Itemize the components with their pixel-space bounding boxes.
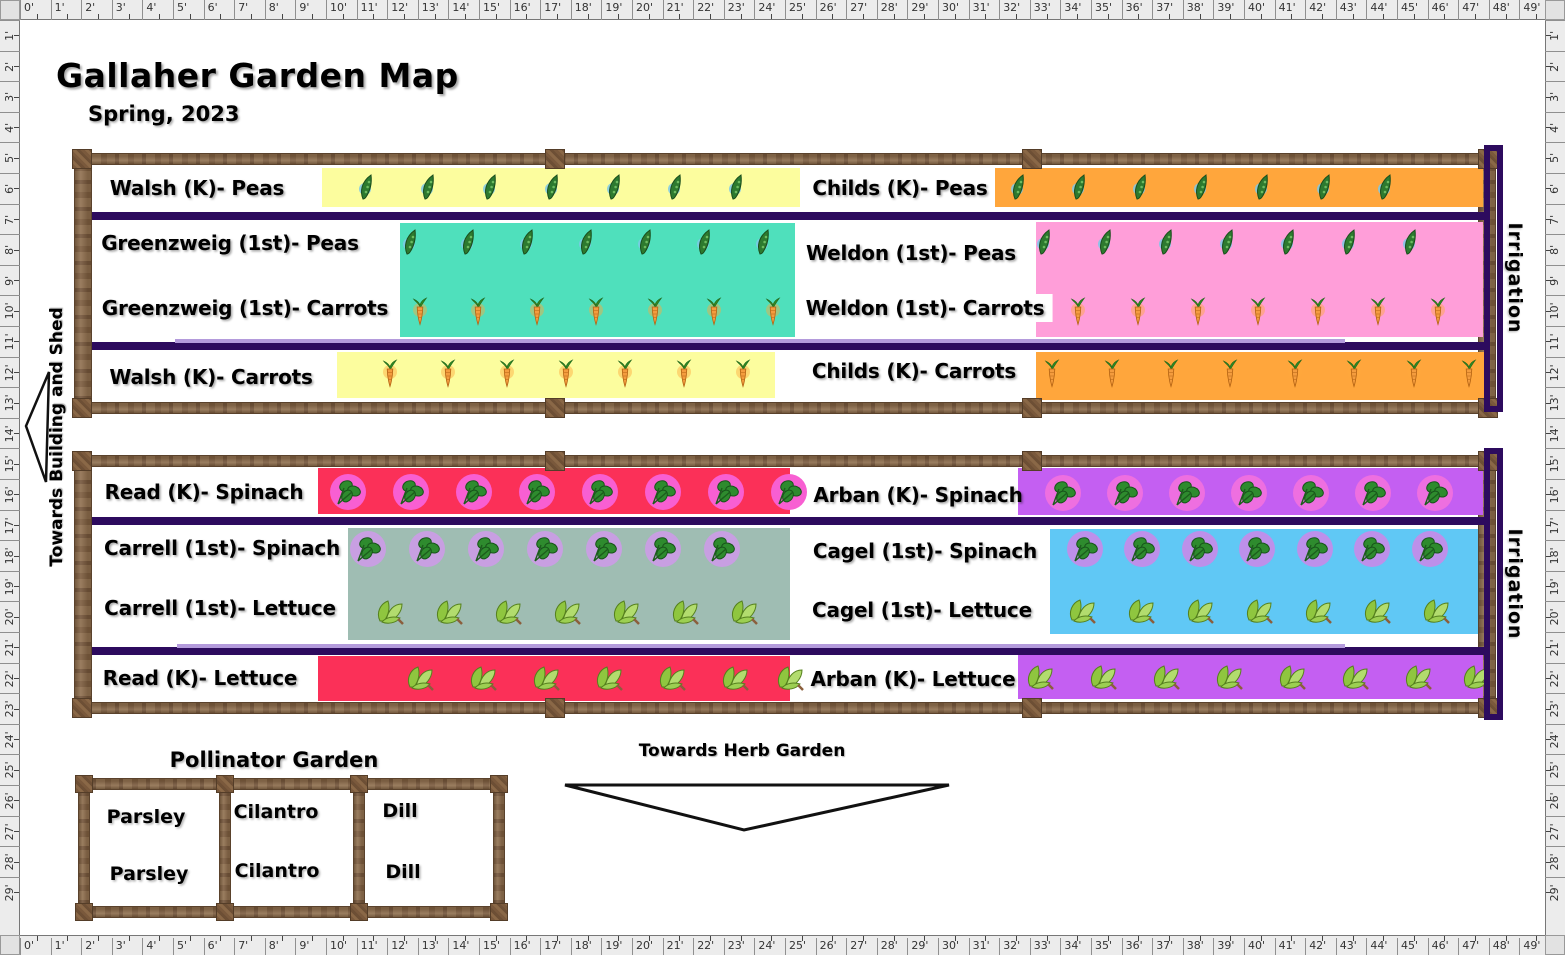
lettuce-icon <box>1339 664 1371 690</box>
herb-label: Dill <box>382 800 417 822</box>
ruler-tick <box>832 936 833 941</box>
spinach-icon <box>1048 478 1078 508</box>
ruler-tick <box>894 936 895 941</box>
ruler-label: 13' <box>418 0 449 20</box>
ruler-label: 18' <box>571 938 602 955</box>
lettuce-icon <box>1213 664 1245 690</box>
irrigation-line-light <box>177 644 1345 648</box>
pollinator-divider-rail <box>353 778 365 918</box>
ruler-tick <box>741 936 742 941</box>
ruler-tick <box>1546 647 1551 648</box>
ruler-label: 44' <box>1366 938 1397 955</box>
ruler-tick <box>741 14 742 19</box>
ruler-label: 3' <box>112 0 143 20</box>
ruler-label: 11' <box>357 0 388 20</box>
ruler-tick <box>924 936 925 941</box>
spinach-icon <box>1110 478 1140 508</box>
pea-icon <box>728 173 748 201</box>
bed-2-bottom-rail <box>74 702 1496 714</box>
ruler-tick <box>557 14 558 19</box>
irrigation-main-line <box>1484 448 1503 720</box>
pea-icon <box>482 173 502 201</box>
ruler-label: 19' <box>601 938 632 955</box>
ruler-tick <box>1291 14 1292 19</box>
spinach-icon <box>522 477 552 507</box>
spinach-icon <box>333 477 363 507</box>
bed-2-top-rail <box>74 455 1496 467</box>
ruler-tick <box>14 678 19 679</box>
carrot-icon <box>1044 359 1060 389</box>
spinach-icon <box>774 477 804 507</box>
lettuce-icon <box>1302 598 1334 624</box>
ruler-tick <box>220 14 221 19</box>
ruler-tick <box>465 14 466 19</box>
ruler-tick <box>14 250 19 251</box>
pollinator-left-rail <box>78 778 90 918</box>
carrot-icon <box>1287 359 1303 389</box>
spinach-icon <box>1127 534 1157 564</box>
ruler-tick <box>1016 14 1017 19</box>
ruler-tick <box>955 936 956 941</box>
ruler-tick <box>67 936 68 941</box>
planting-label: Read (K)- Lettuce <box>103 666 297 690</box>
lettuce-icon <box>551 599 583 625</box>
ruler-tick <box>1546 739 1551 740</box>
ruler-tick <box>1200 14 1201 19</box>
ruler-label: 37' <box>1152 0 1183 20</box>
irrigation-line-light <box>175 339 1345 343</box>
ruler-tick <box>1546 862 1551 863</box>
ruler-label: 7' <box>234 0 265 20</box>
lettuce-icon <box>1420 598 1452 624</box>
ruler-tick <box>1546 250 1551 251</box>
ruler-tick <box>985 14 986 19</box>
ruler-tick <box>588 936 589 941</box>
pea-icon <box>1071 173 1091 201</box>
ruler-label: 25' <box>785 938 816 955</box>
herb-label: Dill <box>385 861 420 883</box>
ruler-tick <box>1444 14 1445 19</box>
carrot-icon <box>1370 297 1386 327</box>
wood-post <box>216 903 234 921</box>
ruler-tick <box>14 525 19 526</box>
ruler-tick <box>710 14 711 19</box>
ruler-tick <box>1169 14 1170 19</box>
herb-label: Parsley <box>107 806 186 828</box>
pea-icon <box>358 173 378 201</box>
ruler-tick <box>771 14 772 19</box>
ruler-tick <box>14 66 19 67</box>
ruler-label: 15' <box>479 0 510 20</box>
spinach-icon <box>459 477 489 507</box>
pollinator-divider-rail <box>219 778 231 918</box>
lettuce-icon <box>593 665 625 691</box>
ruler-label: 23' <box>724 0 755 20</box>
ruler-tick <box>1414 14 1415 19</box>
carrot-icon <box>765 297 781 327</box>
ruler-label: 25' <box>785 0 816 20</box>
ruler-tick <box>1546 403 1551 404</box>
carrot-icon <box>1222 359 1238 389</box>
planting-label: Read (K)- Spinach <box>105 480 304 504</box>
ruler-label: 21' <box>663 0 694 20</box>
ruler-tick <box>14 617 19 618</box>
ruler-label: 9' <box>295 0 326 20</box>
ruler-label: 20' <box>632 0 663 20</box>
carrot-icon <box>1163 359 1179 389</box>
lettuce-icon <box>728 599 760 625</box>
ruler-label: 11' <box>357 938 388 955</box>
ruler-tick <box>1475 936 1476 941</box>
wood-post <box>72 698 92 718</box>
ruler-tick <box>14 127 19 128</box>
planting-label: Greenzweig (1st)- Peas <box>101 231 359 255</box>
ruler-tick <box>312 14 313 19</box>
spinach-icon <box>1242 534 1272 564</box>
ruler-tick <box>1546 372 1551 373</box>
carrot-icon <box>1430 297 1446 327</box>
ruler-label: 18' <box>571 0 602 20</box>
pea-icon <box>1036 228 1056 256</box>
ruler-label: 14' <box>448 0 479 20</box>
irrigation-label: Irrigation <box>1504 529 1526 640</box>
ruler-label: 29' <box>907 938 938 955</box>
ruler-tick <box>1230 936 1231 941</box>
spinach-icon <box>1070 534 1100 564</box>
pea-icon <box>637 228 657 256</box>
spinach-icon <box>1296 478 1326 508</box>
ruler-tick <box>251 14 252 19</box>
ruler-tick <box>1546 678 1551 679</box>
bed-1-top-rail <box>74 153 1496 165</box>
spinach-icon <box>707 534 737 564</box>
ruler-label: 30' <box>938 938 969 955</box>
ruler-tick <box>710 936 711 941</box>
ruler-tick <box>1383 14 1384 19</box>
ruler-label: 36' <box>1122 0 1153 20</box>
ruler-tick <box>1077 14 1078 19</box>
building-shed-arrow-icon <box>22 368 54 488</box>
carrot-icon <box>1130 297 1146 327</box>
spinach-icon <box>1172 478 1202 508</box>
planting-label: Walsh (K)- Peas <box>110 176 284 200</box>
ruler-label: 31' <box>969 0 1000 20</box>
ruler-tick <box>1546 709 1551 710</box>
ruler-label: 44' <box>1366 0 1397 20</box>
ruler-tick <box>14 188 19 189</box>
ruler-tick <box>1546 831 1551 832</box>
bed-2-left-rail <box>74 455 92 714</box>
carrot-icon <box>558 359 574 389</box>
ruler-tick <box>955 14 956 19</box>
wood-post <box>75 775 93 793</box>
ruler-tick <box>1546 311 1551 312</box>
ruler-tick <box>14 464 19 465</box>
wood-post <box>545 451 565 471</box>
ruler-tick <box>802 14 803 19</box>
pea-icon <box>1280 228 1300 256</box>
planting-label: Arban (K)- Spinach <box>813 483 1022 507</box>
spinach-icon <box>396 477 426 507</box>
wood-post <box>490 775 508 793</box>
wood-post <box>1022 451 1042 471</box>
ruler-tick <box>1546 770 1551 771</box>
pea-icon <box>1132 173 1152 201</box>
carrot-icon <box>735 359 751 389</box>
ruler-tick <box>649 14 650 19</box>
ruler-tick <box>1546 433 1551 434</box>
ruler-tick <box>1138 14 1139 19</box>
wood-post <box>545 698 565 718</box>
ruler-label: 4' <box>142 0 173 20</box>
ruler-label: 5' <box>173 0 204 20</box>
ruler-tick <box>282 936 283 941</box>
ruler-tick <box>14 739 19 740</box>
ruler-tick <box>98 14 99 19</box>
planting-label: Weldon (1st)- Carrots <box>798 294 1053 322</box>
spinach-icon <box>711 477 741 507</box>
carrot-icon <box>706 297 722 327</box>
spinach-icon <box>648 534 678 564</box>
irrigation-line <box>92 212 1490 220</box>
ruler-label: 19' <box>601 0 632 20</box>
lettuce-icon <box>492 599 524 625</box>
ruler-tick <box>14 892 19 893</box>
ruler-tick <box>1353 14 1354 19</box>
ruler-tick <box>14 770 19 771</box>
ruler-tick <box>404 936 405 941</box>
ruler-tick <box>67 14 68 19</box>
ruler-label: 8' <box>265 0 296 20</box>
pea-icon <box>1254 173 1274 201</box>
ruler-label: 12' <box>387 0 418 20</box>
lettuce-icon <box>374 599 406 625</box>
ruler-label: 48' <box>1489 938 1520 955</box>
ruler-label: 49' <box>1519 938 1550 955</box>
planting-row-rect <box>337 352 775 398</box>
ruler-tick <box>435 936 436 941</box>
planting-label: Weldon (1st)- Peas <box>806 241 1016 265</box>
pea-icon <box>1158 228 1178 256</box>
ruler-tick <box>1546 525 1551 526</box>
ruler-tick <box>618 14 619 19</box>
ruler-label: 2' <box>81 938 112 955</box>
carrot-icon <box>676 359 692 389</box>
ruler-label: 45' <box>1397 938 1428 955</box>
ruler-label: 20' <box>632 938 663 955</box>
pea-icon <box>420 173 440 201</box>
ruler-tick <box>1546 127 1551 128</box>
bed-1-left-rail <box>74 153 92 414</box>
ruler-label: 42' <box>1305 938 1336 955</box>
ruler-tick <box>679 14 680 19</box>
wood-post <box>490 903 508 921</box>
irrigation-line <box>92 517 1490 525</box>
ruler-label: 28' <box>877 938 908 955</box>
pea-icon <box>1341 228 1361 256</box>
ruler-label: 36' <box>1122 938 1153 955</box>
ruler-tick <box>1506 14 1507 19</box>
irrigation-line <box>92 342 1490 350</box>
ruler-tick <box>1546 35 1551 36</box>
spinach-icon <box>1358 478 1388 508</box>
ruler-tick <box>1322 14 1323 19</box>
ruler-label: 13' <box>418 938 449 955</box>
ruler-tick <box>404 14 405 19</box>
wood-post <box>1022 149 1042 169</box>
ruler-tick <box>14 372 19 373</box>
ruler-tick <box>14 556 19 557</box>
pea-icon <box>755 228 775 256</box>
ruler-tick <box>1016 936 1017 941</box>
ruler-tick <box>1475 14 1476 19</box>
lettuce-icon <box>774 665 806 691</box>
ruler-label: 17' <box>540 938 571 955</box>
ruler-tick <box>1108 936 1109 941</box>
page-subtitle: Spring, 2023 <box>88 102 239 126</box>
lettuce-icon <box>530 665 562 691</box>
spinach-icon <box>1234 478 1264 508</box>
carrot-icon <box>1346 359 1362 389</box>
ruler-label: 14' <box>448 938 479 955</box>
ruler-tick <box>1546 464 1551 465</box>
ruler-label: 43' <box>1336 938 1367 955</box>
ruler-tick <box>1230 14 1231 19</box>
ruler-label: 39' <box>1213 0 1244 20</box>
lettuce-icon <box>467 665 499 691</box>
ruler-label: 32' <box>999 938 1030 955</box>
ruler-label: 35' <box>1091 938 1122 955</box>
ruler-label: 22' <box>693 938 724 955</box>
ruler-label: 35' <box>1091 0 1122 20</box>
ruler-tick <box>14 862 19 863</box>
ruler-tick <box>1261 14 1262 19</box>
carrot-icon <box>470 297 486 327</box>
ruler-tick <box>1200 936 1201 941</box>
carrot-icon <box>1190 297 1206 327</box>
pea-icon <box>578 228 598 256</box>
ruler-label: 33' <box>1030 938 1061 955</box>
ruler-tick <box>129 936 130 941</box>
planting-label: Childs (K)- Carrots <box>812 359 1016 383</box>
ruler-label: 17' <box>540 0 571 20</box>
ruler-tick <box>649 936 650 941</box>
wood-post <box>545 149 565 169</box>
ruler-label: 27' <box>846 938 877 955</box>
spinach-icon <box>585 477 615 507</box>
ruler-label: 23' <box>724 938 755 955</box>
carrot-icon <box>1461 359 1477 389</box>
ruler-tick <box>496 936 497 941</box>
wood-post <box>350 903 368 921</box>
pollinator-bottom-rail <box>78 906 505 918</box>
wood-post <box>216 775 234 793</box>
ruler-tick <box>1291 936 1292 941</box>
ruler-tick <box>343 14 344 19</box>
planting-label: Cagel (1st)- Lettuce <box>812 598 1032 622</box>
page-title: Gallaher Garden Map <box>56 56 459 95</box>
ruler-tick <box>14 709 19 710</box>
ruler-label: 40' <box>1244 0 1275 20</box>
pea-icon <box>1402 228 1422 256</box>
ruler-tick <box>373 936 374 941</box>
ruler-label: 0' <box>20 0 51 20</box>
carrot-icon <box>499 359 515 389</box>
ruler-label: 7' <box>234 938 265 955</box>
ruler-tick <box>1383 936 1384 941</box>
wood-post <box>72 451 92 471</box>
irrigation-main-line <box>1484 145 1503 412</box>
ruler-label: 48' <box>1489 0 1520 20</box>
lettuce-icon <box>1402 664 1434 690</box>
ruler-label: 12' <box>387 938 418 955</box>
ruler-label: 34' <box>1060 938 1091 955</box>
ruler-tick <box>1546 97 1551 98</box>
ruler-tick <box>37 936 38 941</box>
ruler-label: 1' <box>51 938 82 955</box>
spinach-icon <box>648 477 678 507</box>
ruler-label: 32' <box>999 0 1030 20</box>
ruler-tick <box>14 831 19 832</box>
planting-label: Childs (K)- Peas <box>812 176 987 200</box>
ruler-tick <box>557 936 558 941</box>
lettuce-icon <box>610 599 642 625</box>
ruler-tick <box>129 14 130 19</box>
ruler-tick <box>14 494 19 495</box>
carrot-icon <box>1250 297 1266 327</box>
spinach-icon <box>471 534 501 564</box>
pollinator-top-rail <box>78 778 505 790</box>
ruler-tick <box>14 341 19 342</box>
carrot-icon <box>529 297 545 327</box>
ruler-tick <box>1546 280 1551 281</box>
pea-icon <box>1010 173 1030 201</box>
lettuce-icon <box>719 665 751 691</box>
ruler-label: 5' <box>173 938 204 955</box>
ruler-label: 29' <box>907 0 938 20</box>
lettuce-icon <box>433 599 465 625</box>
pea-icon <box>1377 173 1397 201</box>
spinach-icon <box>412 534 442 564</box>
ruler-tick <box>1546 617 1551 618</box>
ruler-tick <box>802 936 803 941</box>
ruler-tick <box>190 14 191 19</box>
ruler-tick <box>14 158 19 159</box>
ruler-tick <box>1444 936 1445 941</box>
garden-map-canvas: Gallaher Garden Map Spring, 2023 0'0'1'1… <box>0 0 1565 955</box>
pea-icon <box>402 228 422 256</box>
ruler-tick <box>863 14 864 19</box>
wood-post <box>1022 398 1042 418</box>
ruler-label: 41' <box>1275 0 1306 20</box>
ruler-tick <box>1546 158 1551 159</box>
planting-label: Walsh (K)- Carrots <box>109 365 312 389</box>
ruler-tick <box>1546 586 1551 587</box>
ruler-tick <box>771 936 772 941</box>
ruler-tick <box>1546 341 1551 342</box>
ruler-tick <box>863 936 864 941</box>
pea-icon <box>667 173 687 201</box>
ruler-label: 47' <box>1458 0 1489 20</box>
spinach-icon <box>530 534 560 564</box>
ruler-label: 42' <box>1305 0 1336 20</box>
ruler-label: 31' <box>969 938 1000 955</box>
irrigation-label: Irrigation <box>1504 223 1526 334</box>
wood-post <box>75 903 93 921</box>
ruler-label: 0' <box>20 938 51 955</box>
ruler-tick <box>985 936 986 941</box>
lettuce-icon <box>656 665 688 691</box>
